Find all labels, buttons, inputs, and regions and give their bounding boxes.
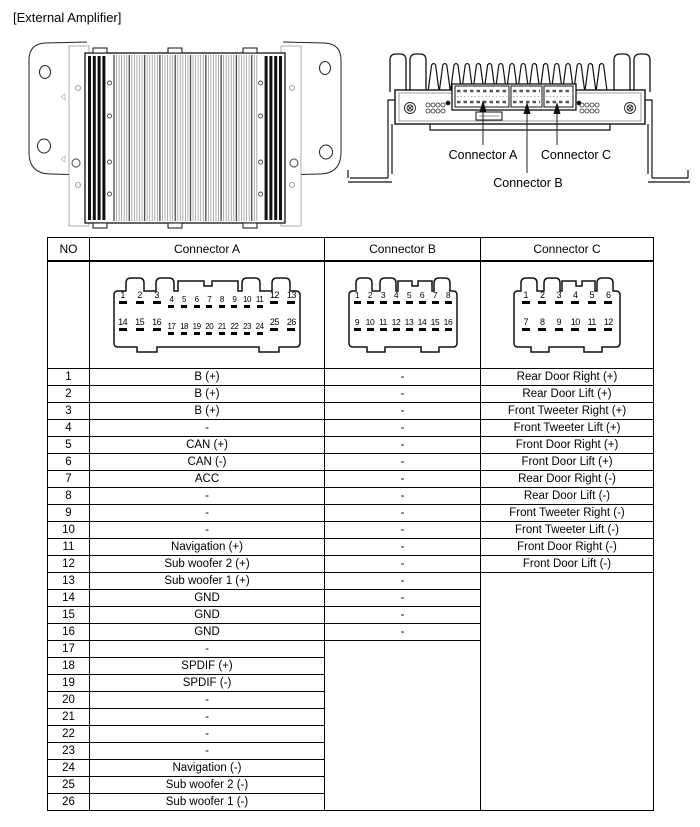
cell-connector-c: Front Tweeter Lift (-) <box>481 522 654 539</box>
connector-c-callout-label: Connector C <box>541 148 611 162</box>
cell-connector-a: ACC <box>90 471 325 488</box>
pin-terminal-mark <box>287 301 295 304</box>
pin-11: 11 <box>584 318 601 331</box>
pin-1: 1 <box>518 291 535 304</box>
pin-terminal-mark <box>380 328 387 331</box>
pin-3: 3 <box>551 291 568 304</box>
pin-terminal-mark <box>604 301 612 304</box>
cell-connector-c: Front Tweeter Right (-) <box>481 505 654 522</box>
cell-connector-a: - <box>90 726 325 743</box>
cell-no: 23 <box>48 743 90 760</box>
pin-4: 4 <box>567 291 584 304</box>
table-row: 1B (+)-Rear Door Right (+) <box>48 369 654 386</box>
cell-connector-b: - <box>325 437 481 454</box>
pin-terminal-mark <box>393 301 400 304</box>
pin-terminal-mark <box>393 328 400 331</box>
pin-8: 8 <box>442 291 455 304</box>
pin-5: 5 <box>403 291 416 304</box>
cell-no: 14 <box>48 590 90 607</box>
cell-connector-b: - <box>325 488 481 505</box>
table-row: 12Sub woofer 2 (+)-Front Door Lift (-) <box>48 556 654 573</box>
pin-15: 15 <box>131 318 148 331</box>
pin-terminal-mark <box>445 301 452 304</box>
cell-connector-a: GND <box>90 624 325 641</box>
cell-connector-a: GND <box>90 607 325 624</box>
pin-terminal-mark <box>153 301 161 304</box>
pin-9: 9 <box>551 318 568 331</box>
connector-c-block <box>544 86 573 107</box>
col-header-connector-c: Connector C <box>481 238 654 262</box>
pin-2: 2 <box>364 291 377 304</box>
pin-12: 12 <box>266 291 283 304</box>
pin-terminal-mark <box>367 328 374 331</box>
pin-12: 12 <box>390 318 403 331</box>
pin-4: 4 <box>165 296 178 308</box>
table-row: 7ACC-Rear Door Right (-) <box>48 471 654 488</box>
cell-connector-b: - <box>325 471 481 488</box>
cell-connector-a: Sub woofer 2 (-) <box>90 777 325 794</box>
pin-11: 11 <box>253 296 266 308</box>
col-header-connector-b: Connector B <box>325 238 481 262</box>
cell-connector-b: - <box>325 556 481 573</box>
connector-a-pin-diagram: 1234567891011121314151617181920212223242… <box>111 274 303 356</box>
pin-terminal-mark <box>257 305 263 308</box>
col-header-connector-a: Connector A <box>90 238 325 262</box>
pin-8: 8 <box>534 318 551 331</box>
table-row: 4--Front Tweeter Lift (+) <box>48 420 654 437</box>
cell-no: 7 <box>48 471 90 488</box>
pin-terminal-mark <box>181 305 187 308</box>
pin-terminal-mark <box>244 332 250 335</box>
table-row: 5CAN (+)-Front Door Right (+) <box>48 437 654 454</box>
pin-terminal-mark <box>270 328 278 331</box>
pin-7: 7 <box>203 296 216 308</box>
pin-terminal-mark <box>522 328 530 331</box>
pin-13: 13 <box>403 318 416 331</box>
pin-terminal-mark <box>555 301 563 304</box>
pin-9: 9 <box>351 318 364 331</box>
cell-connector-a: - <box>90 505 325 522</box>
pin-8: 8 <box>216 296 229 308</box>
pin-23: 23 <box>241 323 254 335</box>
cell-connector-a: Sub woofer 2 (+) <box>90 556 325 573</box>
pin-terminal-mark <box>206 332 212 335</box>
diagram-cell-a: 1234567891011121314151617181920212223242… <box>90 261 325 369</box>
pin-1: 1 <box>114 291 131 304</box>
heatsink-body <box>85 48 285 228</box>
cell-connector-c: Front Door Right (+) <box>481 437 654 454</box>
pin-21: 21 <box>216 323 229 335</box>
pin-terminal-mark <box>181 332 187 335</box>
pin-16: 16 <box>148 318 165 331</box>
cell-no: 10 <box>48 522 90 539</box>
pin-3: 3 <box>148 291 165 304</box>
cell-no: 16 <box>48 624 90 641</box>
cell-connector-c: Rear Door Right (+) <box>481 369 654 386</box>
pin-terminal-mark <box>194 305 200 308</box>
pin-20: 20 <box>203 323 216 335</box>
pin-2: 2 <box>131 291 148 304</box>
cell-no: 12 <box>48 556 90 573</box>
cell-no: 9 <box>48 505 90 522</box>
connector-c-pin-diagram: 123456789101112 <box>511 274 623 356</box>
pin-terminal-mark <box>419 301 426 304</box>
cell-connector-c: Front Tweeter Right (+) <box>481 403 654 420</box>
diagram-cell-b: 12345678910111213141516 <box>325 261 481 369</box>
page: [External Amplifier] <box>0 0 700 827</box>
pin-terminal-mark <box>119 301 127 304</box>
cell-connector-b: - <box>325 420 481 437</box>
pin-14: 14 <box>114 318 131 331</box>
pin-10: 10 <box>364 318 377 331</box>
pin-9: 9 <box>228 296 241 308</box>
pinout-table-body: 1234567891011121314151617181920212223242… <box>48 261 654 811</box>
pin-terminal-mark <box>432 301 439 304</box>
cell-connector-b-empty <box>325 641 481 811</box>
cell-connector-a: - <box>90 743 325 760</box>
cell-connector-c: Front Tweeter Lift (+) <box>481 420 654 437</box>
cell-connector-b: - <box>325 539 481 556</box>
cell-connector-a: SPDIF (-) <box>90 675 325 692</box>
cell-connector-a: SPDIF (+) <box>90 658 325 675</box>
cell-connector-a: - <box>90 641 325 658</box>
pin-terminal-mark <box>194 332 200 335</box>
table-row: 8--Rear Door Lift (-) <box>48 488 654 505</box>
pin-terminal-mark <box>571 301 579 304</box>
pin-terminal-mark <box>244 305 250 308</box>
cell-connector-a: - <box>90 709 325 726</box>
pin-22: 22 <box>228 323 241 335</box>
cell-connector-b: - <box>325 369 481 386</box>
pin-terminal-mark <box>206 305 212 308</box>
pin-terminal-mark <box>257 332 263 335</box>
cell-connector-c: Rear Door Right (-) <box>481 471 654 488</box>
pin-terminal-mark <box>604 328 612 331</box>
pin-terminal-mark <box>432 328 439 331</box>
pin-6: 6 <box>600 291 617 304</box>
cell-connector-c: Front Door Lift (-) <box>481 556 654 573</box>
cell-connector-a: Sub woofer 1 (+) <box>90 573 325 590</box>
table-header-row: NO Connector A Connector B Connector C <box>48 238 654 262</box>
page-title: [External Amplifier] <box>13 10 121 25</box>
pin-17: 17 <box>165 323 178 335</box>
pin-14: 14 <box>416 318 429 331</box>
cell-connector-a: CAN (-) <box>90 454 325 471</box>
cell-connector-b: - <box>325 454 481 471</box>
cell-connector-a: B (+) <box>90 403 325 420</box>
pin-11: 11 <box>377 318 390 331</box>
cell-connector-b: - <box>325 590 481 607</box>
pin-terminal-mark <box>219 305 225 308</box>
pinout-table: NO Connector A Connector B Connector C 1… <box>47 237 654 811</box>
cell-connector-a: Navigation (+) <box>90 539 325 556</box>
cell-no: 15 <box>48 607 90 624</box>
cell-no: 13 <box>48 573 90 590</box>
pin-26: 26 <box>283 318 300 331</box>
pin-10: 10 <box>567 318 584 331</box>
cell-no: 6 <box>48 454 90 471</box>
diagram-cell-c: 123456789101112 <box>481 261 654 369</box>
cell-connector-a: CAN (+) <box>90 437 325 454</box>
pin-terminal-mark <box>354 301 361 304</box>
table-row: 13Sub woofer 1 (+)- <box>48 573 654 590</box>
pin-terminal-mark <box>354 328 361 331</box>
pin-4: 4 <box>390 291 403 304</box>
diagram-cell-no <box>48 261 90 369</box>
pin-6: 6 <box>416 291 429 304</box>
cell-connector-a: B (+) <box>90 369 325 386</box>
pin-7: 7 <box>518 318 535 331</box>
cell-no: 22 <box>48 726 90 743</box>
pin-6: 6 <box>190 296 203 308</box>
cell-no: 2 <box>48 386 90 403</box>
pin-19: 19 <box>190 323 203 335</box>
pin-terminal-mark <box>136 328 144 331</box>
connector-a-callout-label: Connector A <box>449 148 518 162</box>
pin-7: 7 <box>429 291 442 304</box>
pin-5: 5 <box>584 291 601 304</box>
pin-terminal-mark <box>136 301 144 304</box>
pin-terminal-mark <box>445 328 452 331</box>
mounting-bracket-right <box>281 42 341 226</box>
cell-connector-c: Front Door Right (-) <box>481 539 654 556</box>
pin-terminal-mark <box>406 301 413 304</box>
mounting-bracket-left <box>29 42 89 226</box>
pin-15: 15 <box>429 318 442 331</box>
cell-no: 21 <box>48 709 90 726</box>
cell-connector-b: - <box>325 505 481 522</box>
pin-terminal-mark <box>153 328 161 331</box>
pin-terminal-mark <box>231 332 237 335</box>
cell-connector-a: Sub woofer 1 (-) <box>90 794 325 811</box>
table-row: 6CAN (-)-Front Door Lift (+) <box>48 454 654 471</box>
pin-terminal-mark <box>219 332 225 335</box>
cell-connector-c: Front Door Lift (+) <box>481 454 654 471</box>
pin-1: 1 <box>351 291 364 304</box>
pin-13: 13 <box>283 291 300 304</box>
pin-18: 18 <box>178 323 191 335</box>
cell-connector-b: - <box>325 624 481 641</box>
cell-no: 20 <box>48 692 90 709</box>
cell-no: 26 <box>48 794 90 811</box>
table-row: 10--Front Tweeter Lift (-) <box>48 522 654 539</box>
pin-terminal-mark <box>522 301 530 304</box>
pin-terminal-mark <box>588 328 596 331</box>
cell-connector-a: GND <box>90 590 325 607</box>
pin-terminal-mark <box>406 328 413 331</box>
pin-5: 5 <box>178 296 191 308</box>
cell-connector-a: - <box>90 420 325 437</box>
pin-terminal-mark <box>367 301 374 304</box>
pin-terminal-mark <box>588 301 596 304</box>
pin-3: 3 <box>377 291 390 304</box>
cell-connector-b: - <box>325 607 481 624</box>
pin-10: 10 <box>241 296 254 308</box>
pin-2: 2 <box>534 291 551 304</box>
pin-terminal-mark <box>168 332 174 335</box>
amplifier-front-view-drawing <box>25 38 345 234</box>
cell-connector-a: B (+) <box>90 386 325 403</box>
table-row: 2B (+)-Rear Door Lift (+) <box>48 386 654 403</box>
connector-diagrams-row: 1234567891011121314151617181920212223242… <box>48 261 654 369</box>
pin-terminal-mark <box>168 305 174 308</box>
table-row: 3B (+)-Front Tweeter Right (+) <box>48 403 654 420</box>
cell-no: 1 <box>48 369 90 386</box>
pin-25: 25 <box>266 318 283 331</box>
pin-terminal-mark <box>287 328 295 331</box>
cell-connector-b: - <box>325 573 481 590</box>
side-fins-left <box>390 54 426 92</box>
cell-connector-a: Navigation (-) <box>90 760 325 777</box>
cell-no: 11 <box>48 539 90 556</box>
cell-connector-a: - <box>90 692 325 709</box>
pin-16: 16 <box>442 318 455 331</box>
pin-terminal-mark <box>571 328 579 331</box>
table-row: 9--Front Tweeter Right (-) <box>48 505 654 522</box>
cell-no: 18 <box>48 658 90 675</box>
col-header-no: NO <box>48 238 90 262</box>
cell-connector-b: - <box>325 522 481 539</box>
cell-no: 17 <box>48 641 90 658</box>
table-row: 11Navigation (+)-Front Door Right (-) <box>48 539 654 556</box>
cell-no: 25 <box>48 777 90 794</box>
cell-no: 3 <box>48 403 90 420</box>
cell-no: 4 <box>48 420 90 437</box>
connector-b-pin-diagram: 12345678910111213141516 <box>346 274 460 356</box>
cell-no: 5 <box>48 437 90 454</box>
cell-connector-c-empty <box>481 573 654 811</box>
pin-terminal-mark <box>419 328 426 331</box>
cell-no: 8 <box>48 488 90 505</box>
connector-b-callout-label: Connector B <box>493 176 562 190</box>
pin-terminal-mark <box>538 328 546 331</box>
pin-terminal-mark <box>270 301 278 304</box>
cell-connector-b: - <box>325 386 481 403</box>
pin-12: 12 <box>600 318 617 331</box>
pin-terminal-mark <box>119 328 127 331</box>
cell-connector-b: - <box>325 403 481 420</box>
pin-terminal-mark <box>380 301 387 304</box>
cell-no: 24 <box>48 760 90 777</box>
amplifier-top-view-drawing: Connector A Connector C Connector B <box>340 40 690 200</box>
pin-terminal-mark <box>231 305 237 308</box>
pin-terminal-mark <box>538 301 546 304</box>
pin-terminal-mark <box>555 328 563 331</box>
cell-connector-c: Rear Door Lift (-) <box>481 488 654 505</box>
side-fins-right <box>614 54 650 92</box>
cell-no: 19 <box>48 675 90 692</box>
cell-connector-a: - <box>90 488 325 505</box>
pin-24: 24 <box>253 323 266 335</box>
cell-connector-a: - <box>90 522 325 539</box>
cell-connector-c: Rear Door Lift (+) <box>481 386 654 403</box>
